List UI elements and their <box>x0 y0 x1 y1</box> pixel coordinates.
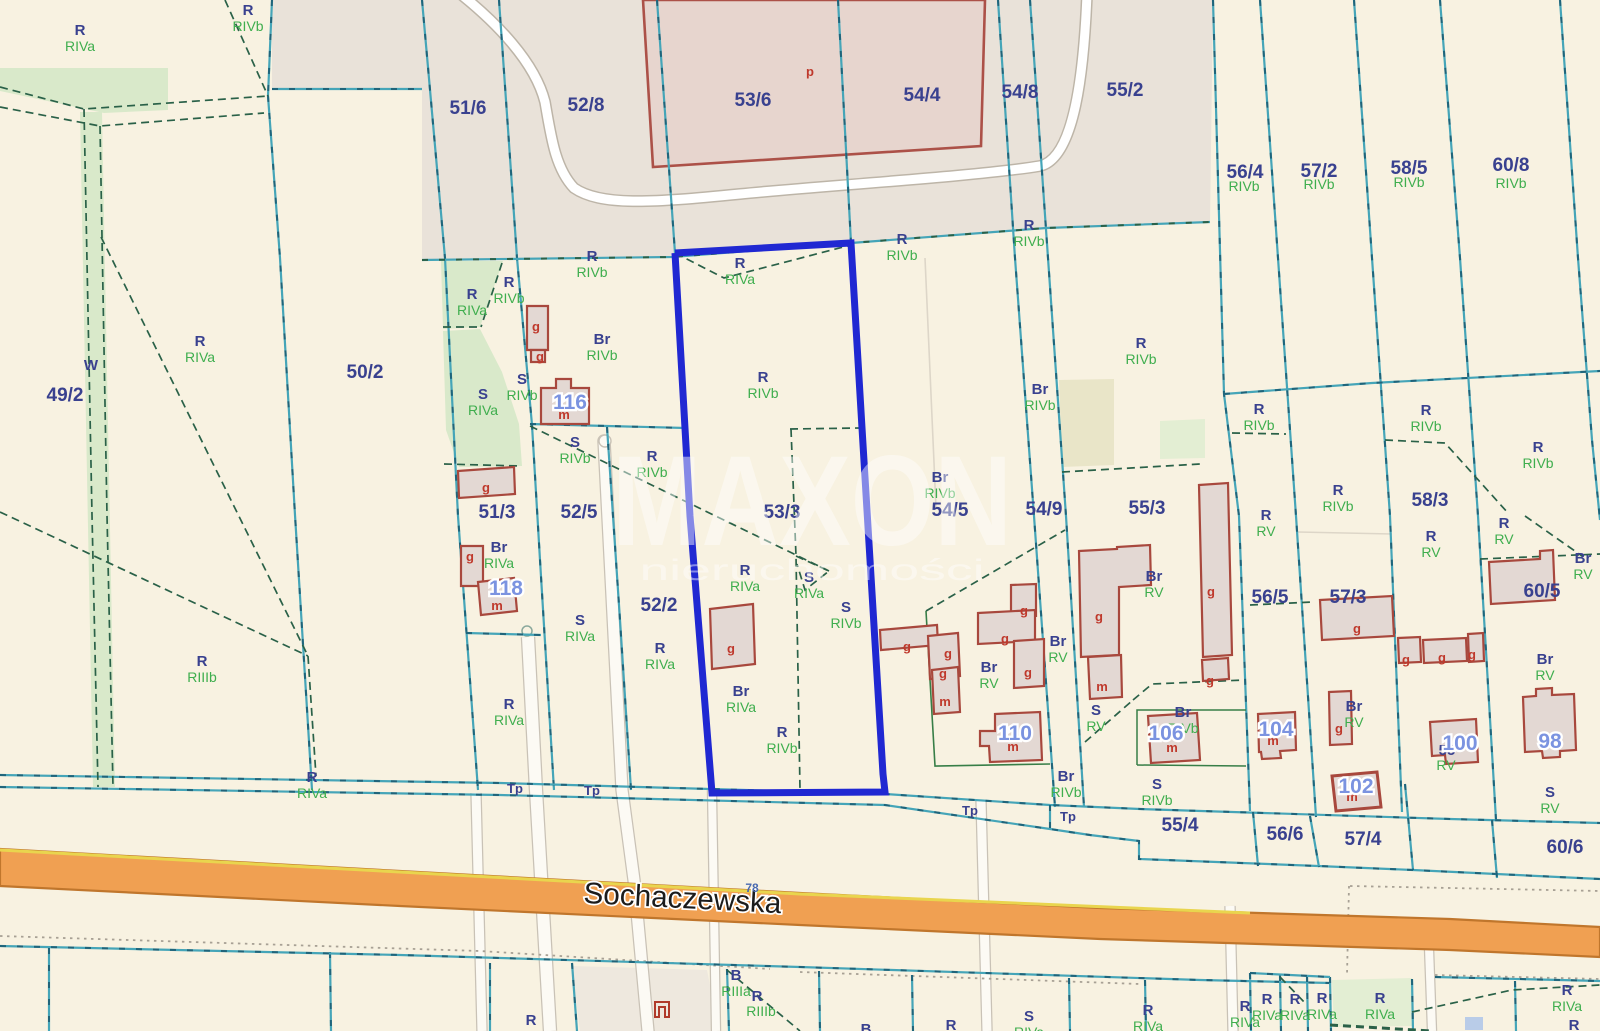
svg-text:Br: Br <box>1575 550 1592 567</box>
svg-text:RV: RV <box>979 675 999 691</box>
svg-text:g: g <box>1402 652 1410 667</box>
svg-text:R: R <box>1499 515 1510 532</box>
svg-text:RIVb: RIVb <box>1393 174 1424 190</box>
svg-text:RIVb: RIVb <box>1522 455 1553 471</box>
svg-text:55/4: 55/4 <box>1162 815 1199 836</box>
svg-text:RIVb: RIVb <box>886 247 917 263</box>
svg-text:R: R <box>195 333 206 350</box>
svg-text:Tp: Tp <box>1060 809 1076 824</box>
svg-text:RIVb: RIVb <box>1013 233 1044 249</box>
svg-text:Br: Br <box>1175 704 1192 721</box>
svg-text:R: R <box>1262 991 1273 1008</box>
svg-text:B: B <box>731 967 742 984</box>
svg-text:RV: RV <box>1573 566 1593 582</box>
svg-text:RIVa: RIVa <box>484 555 514 571</box>
svg-text:R: R <box>735 255 746 272</box>
svg-text:g: g <box>482 480 490 495</box>
svg-text:Tp: Tp <box>962 803 978 818</box>
svg-text:R: R <box>1421 402 1432 419</box>
svg-text:60/6: 60/6 <box>1547 837 1584 858</box>
svg-text:RIVb: RIVb <box>1125 351 1156 367</box>
svg-text:S: S <box>575 612 585 629</box>
svg-text:m: m <box>491 598 503 613</box>
svg-text:100: 100 <box>1442 732 1477 755</box>
svg-text:Br: Br <box>1050 633 1067 650</box>
svg-text:g: g <box>532 319 540 334</box>
svg-text:R: R <box>1024 217 1035 234</box>
svg-text:g: g <box>939 666 947 681</box>
svg-text:RV: RV <box>1436 757 1456 773</box>
svg-text:RIVb: RIVb <box>766 740 797 756</box>
svg-text:R: R <box>504 696 515 713</box>
svg-text:R: R <box>758 369 769 386</box>
svg-text:R: R <box>1136 335 1147 352</box>
svg-text:RIVa: RIVa <box>1252 1007 1282 1023</box>
svg-text:g: g <box>536 349 544 364</box>
svg-text:78: 78 <box>745 881 759 895</box>
svg-text:S: S <box>1024 1008 1034 1025</box>
svg-text:Br: Br <box>491 539 508 556</box>
svg-text:RIVb: RIVb <box>1243 417 1274 433</box>
svg-text:102: 102 <box>1338 775 1373 798</box>
svg-text:Tp: Tp <box>507 781 523 796</box>
svg-text:RIVa: RIVa <box>1307 1006 1337 1022</box>
svg-text:S: S <box>1152 776 1162 793</box>
svg-text:RIVb: RIVb <box>586 347 617 363</box>
svg-text:52/5: 52/5 <box>561 502 598 523</box>
svg-text:g: g <box>1207 584 1215 599</box>
svg-text:Br: Br <box>1537 651 1554 668</box>
svg-text:RIVa: RIVa <box>1133 1018 1163 1031</box>
svg-text:p: p <box>806 64 814 79</box>
svg-text:MAXON: MAXON <box>612 430 1012 573</box>
svg-text:RIVb: RIVb <box>576 264 607 280</box>
svg-text:RIVb: RIVb <box>747 385 778 401</box>
svg-text:RIVa: RIVa <box>297 785 327 801</box>
svg-text:54/9: 54/9 <box>1026 499 1063 520</box>
svg-text:g: g <box>1024 665 1032 680</box>
svg-text:RIVa: RIVa <box>65 38 95 54</box>
svg-text:RIVa: RIVa <box>494 712 524 728</box>
svg-text:RIVb: RIVb <box>1228 178 1259 194</box>
svg-text:R: R <box>1333 482 1344 499</box>
svg-text:RIVb: RIVb <box>1410 418 1441 434</box>
svg-text:RV: RV <box>1256 523 1276 539</box>
svg-text:55/3: 55/3 <box>1129 498 1166 519</box>
svg-text:R: R <box>504 274 515 291</box>
svg-text:RV: RV <box>1344 714 1364 730</box>
svg-text:RV: RV <box>1494 531 1514 547</box>
svg-text:RIVa: RIVa <box>726 699 756 715</box>
svg-text:RIVa: RIVa <box>725 271 755 287</box>
svg-text:g: g <box>1438 650 1446 665</box>
svg-text:R: R <box>467 286 478 303</box>
svg-text:R: R <box>1240 998 1251 1015</box>
svg-text:RIVa: RIVa <box>185 349 215 365</box>
svg-text:R: R <box>1261 507 1272 524</box>
svg-text:RIVa: RIVa <box>1014 1024 1044 1031</box>
svg-text:56/6: 56/6 <box>1267 824 1304 845</box>
svg-text:g: g <box>1335 721 1343 736</box>
svg-text:Br: Br <box>1032 381 1049 398</box>
svg-text:Br: Br <box>594 331 611 348</box>
svg-text:R: R <box>1562 982 1573 999</box>
svg-text:g: g <box>1468 647 1476 662</box>
svg-text:RIVa: RIVa <box>457 302 487 318</box>
svg-text:R: R <box>243 2 254 19</box>
svg-text:g: g <box>944 646 952 661</box>
svg-text:RV: RV <box>1086 718 1106 734</box>
svg-text:R: R <box>1533 439 1544 456</box>
svg-text:RIVb: RIVb <box>1322 498 1353 514</box>
svg-text:g: g <box>1353 621 1361 636</box>
svg-text:B: B <box>861 1021 872 1031</box>
svg-text:R: R <box>197 653 208 670</box>
svg-text:RIVa: RIVa <box>565 628 595 644</box>
svg-text:RIVb: RIVb <box>559 450 590 466</box>
svg-text:Br: Br <box>981 659 998 676</box>
svg-text:RIVb: RIVb <box>830 615 861 631</box>
svg-text:116: 116 <box>553 391 587 414</box>
svg-text:104: 104 <box>1258 718 1293 741</box>
svg-text:RIIIa: RIIIa <box>721 983 751 999</box>
svg-text:S: S <box>517 371 527 388</box>
svg-text:RIVb: RIVb <box>1495 175 1526 191</box>
svg-text:Br: Br <box>1058 768 1075 785</box>
svg-text:RV: RV <box>1144 584 1164 600</box>
svg-text:RIVa: RIVa <box>1280 1007 1310 1023</box>
svg-text:51/6: 51/6 <box>450 98 487 119</box>
svg-text:g: g <box>1020 603 1028 618</box>
svg-text:R: R <box>1426 528 1437 545</box>
svg-text:g: g <box>1206 673 1214 688</box>
svg-text:RIVa: RIVa <box>1365 1006 1395 1022</box>
svg-text:R: R <box>655 640 666 657</box>
svg-text:RIVa: RIVa <box>794 585 824 601</box>
svg-text:54/4: 54/4 <box>904 85 941 106</box>
svg-text:S: S <box>478 386 488 403</box>
svg-text:52/8: 52/8 <box>568 95 605 116</box>
svg-text:57/3: 57/3 <box>1330 587 1367 608</box>
svg-text:W: W <box>84 357 99 374</box>
svg-text:RIIIb: RIIIb <box>187 669 217 685</box>
svg-text:m: m <box>939 694 951 709</box>
svg-text:RIVb: RIVb <box>1050 784 1081 800</box>
svg-text:RIVb: RIVb <box>506 387 537 403</box>
svg-text:52/2: 52/2 <box>641 595 678 616</box>
svg-text:110: 110 <box>998 722 1032 745</box>
svg-text:R: R <box>1254 401 1265 418</box>
svg-text:g: g <box>903 639 911 654</box>
svg-text:m: m <box>1096 679 1108 694</box>
svg-text:R: R <box>1143 1002 1154 1019</box>
svg-text:Br: Br <box>733 683 750 700</box>
svg-text:R: R <box>1317 990 1328 1007</box>
svg-text:nieruchomości: nieruchomości <box>640 554 985 587</box>
svg-text:51/3: 51/3 <box>479 502 516 523</box>
svg-text:R: R <box>75 22 86 39</box>
svg-text:R: R <box>1290 991 1301 1008</box>
svg-text:Br: Br <box>1346 698 1363 715</box>
svg-text:RIVa: RIVa <box>468 402 498 418</box>
svg-text:RIVb: RIVb <box>1024 397 1055 413</box>
svg-text:118: 118 <box>489 577 523 600</box>
svg-text:RV: RV <box>1048 649 1068 665</box>
svg-text:RV: RV <box>1540 800 1560 816</box>
svg-text:g: g <box>727 641 735 656</box>
svg-text:58/3: 58/3 <box>1412 490 1449 511</box>
svg-text:R: R <box>587 248 598 265</box>
svg-text:RV: RV <box>1535 667 1555 683</box>
svg-text:53/6: 53/6 <box>735 90 772 111</box>
svg-text:S: S <box>570 434 580 451</box>
svg-text:R: R <box>946 1017 957 1031</box>
svg-text:S: S <box>1091 702 1101 719</box>
svg-text:R: R <box>1569 1017 1580 1031</box>
svg-text:S: S <box>841 599 851 616</box>
svg-text:R: R <box>777 724 788 741</box>
svg-text:60/5: 60/5 <box>1524 581 1561 602</box>
svg-text:RIIIb: RIIIb <box>746 1003 776 1019</box>
svg-text:98: 98 <box>1538 730 1562 753</box>
svg-text:RIVb: RIVb <box>493 290 524 306</box>
svg-text:g: g <box>466 549 474 564</box>
svg-text:g: g <box>1095 609 1103 624</box>
svg-text:56/5: 56/5 <box>1252 587 1289 608</box>
svg-text:S: S <box>1545 784 1555 801</box>
svg-text:49/2: 49/2 <box>47 385 84 406</box>
svg-text:RV: RV <box>1421 544 1441 560</box>
svg-text:RIVa: RIVa <box>645 656 675 672</box>
svg-text:57/4: 57/4 <box>1345 829 1382 850</box>
svg-text:50/2: 50/2 <box>347 362 384 383</box>
svg-text:55/2: 55/2 <box>1107 80 1144 101</box>
svg-text:R: R <box>1375 990 1386 1007</box>
svg-text:R: R <box>897 231 908 248</box>
svg-text:60/8: 60/8 <box>1493 155 1530 176</box>
svg-text:Br: Br <box>1146 568 1163 585</box>
svg-text:RIVb: RIVb <box>232 18 263 34</box>
svg-text:RIVb: RIVb <box>1141 792 1172 808</box>
svg-text:RIVb: RIVb <box>1303 176 1334 192</box>
svg-text:R: R <box>526 1012 537 1029</box>
svg-text:106: 106 <box>1148 722 1183 745</box>
svg-text:54/8: 54/8 <box>1002 82 1039 103</box>
svg-text:RIVa: RIVa <box>1552 998 1582 1014</box>
svg-text:Tp: Tp <box>584 783 600 798</box>
svg-text:g: g <box>1001 631 1009 646</box>
svg-text:R: R <box>307 769 318 786</box>
